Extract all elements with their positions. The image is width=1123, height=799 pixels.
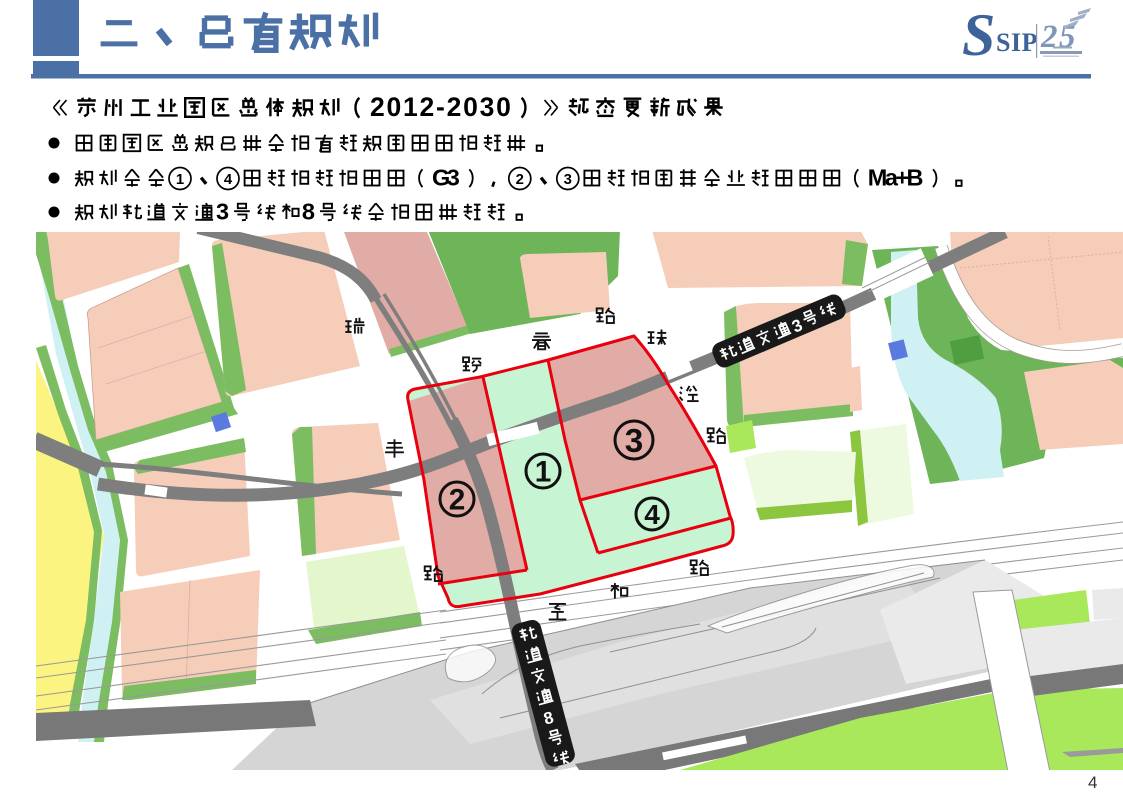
svg-text:3: 3 [625,423,643,460]
svg-text:4: 4 [644,499,660,530]
svg-text:2: 2 [516,172,524,188]
svg-text:3: 3 [564,172,572,188]
svg-text:1: 1 [535,456,552,489]
svg-text:8: 8 [302,199,315,225]
svg-text:SIP: SIP [996,28,1038,57]
svg-text:2: 2 [449,484,466,517]
svg-text:G3: G3 [432,165,460,191]
svg-text:S: S [962,2,995,68]
svg-text:1: 1 [176,172,184,188]
svg-text:Ma+B: Ma+B [868,165,924,191]
svg-text:2012-2030: 2012-2030 [370,92,511,122]
svg-text:4: 4 [1088,773,1097,792]
svg-text:3: 3 [216,199,229,225]
svg-text:4: 4 [224,172,233,188]
